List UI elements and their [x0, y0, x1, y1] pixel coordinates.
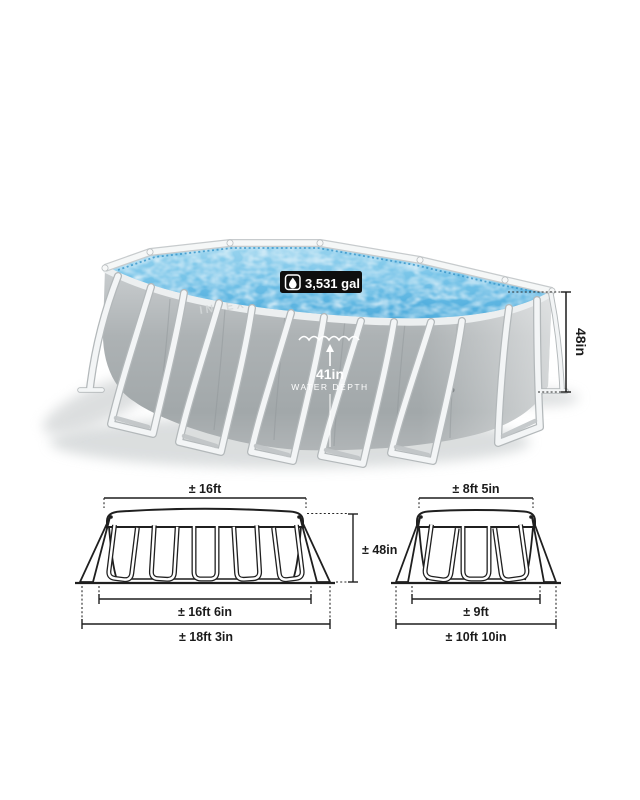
end-base-width-label: ± 9ft [463, 605, 489, 619]
end-view-dimensions: ± 8ft 5in ± 9ft ± 10ft 10in [396, 482, 556, 644]
side-view-legs [108, 525, 303, 580]
side-base-width-label: ± 16ft 6in [178, 605, 232, 619]
end-view-legs [424, 525, 528, 581]
capacity-badge: 3,531 gal [280, 271, 362, 293]
side-view-diagram: ± 16ft ± 48in ± 16ft 6in ± 18ft 3in [75, 482, 397, 644]
end-view-diagram: ± 8ft 5in ± 9ft ± 10ft 10in [391, 482, 561, 644]
end-footprint-label: ± 10ft 10in [445, 630, 506, 644]
side-view-dimensions: ± 16ft ± 48in ± 16ft 6in ± 18ft 3in [82, 482, 397, 644]
water-depth-value: 41in [316, 366, 344, 382]
end-top-width-label: ± 8ft 5in [452, 482, 499, 496]
pool-illustration: INTEX [36, 238, 589, 468]
spec-illustration: INTEX [0, 0, 640, 800]
side-top-width-label: ± 16ft [189, 482, 222, 496]
capacity-label: 3,531 gal [305, 276, 360, 291]
height-dimension-label: 48in [573, 328, 589, 356]
side-footprint-label: ± 18ft 3in [179, 630, 233, 644]
side-height-label: ± 48in [362, 543, 397, 557]
pool-product-spec-image: INTEX [0, 0, 640, 800]
water-depth-label: WATER DEPTH [291, 382, 368, 392]
